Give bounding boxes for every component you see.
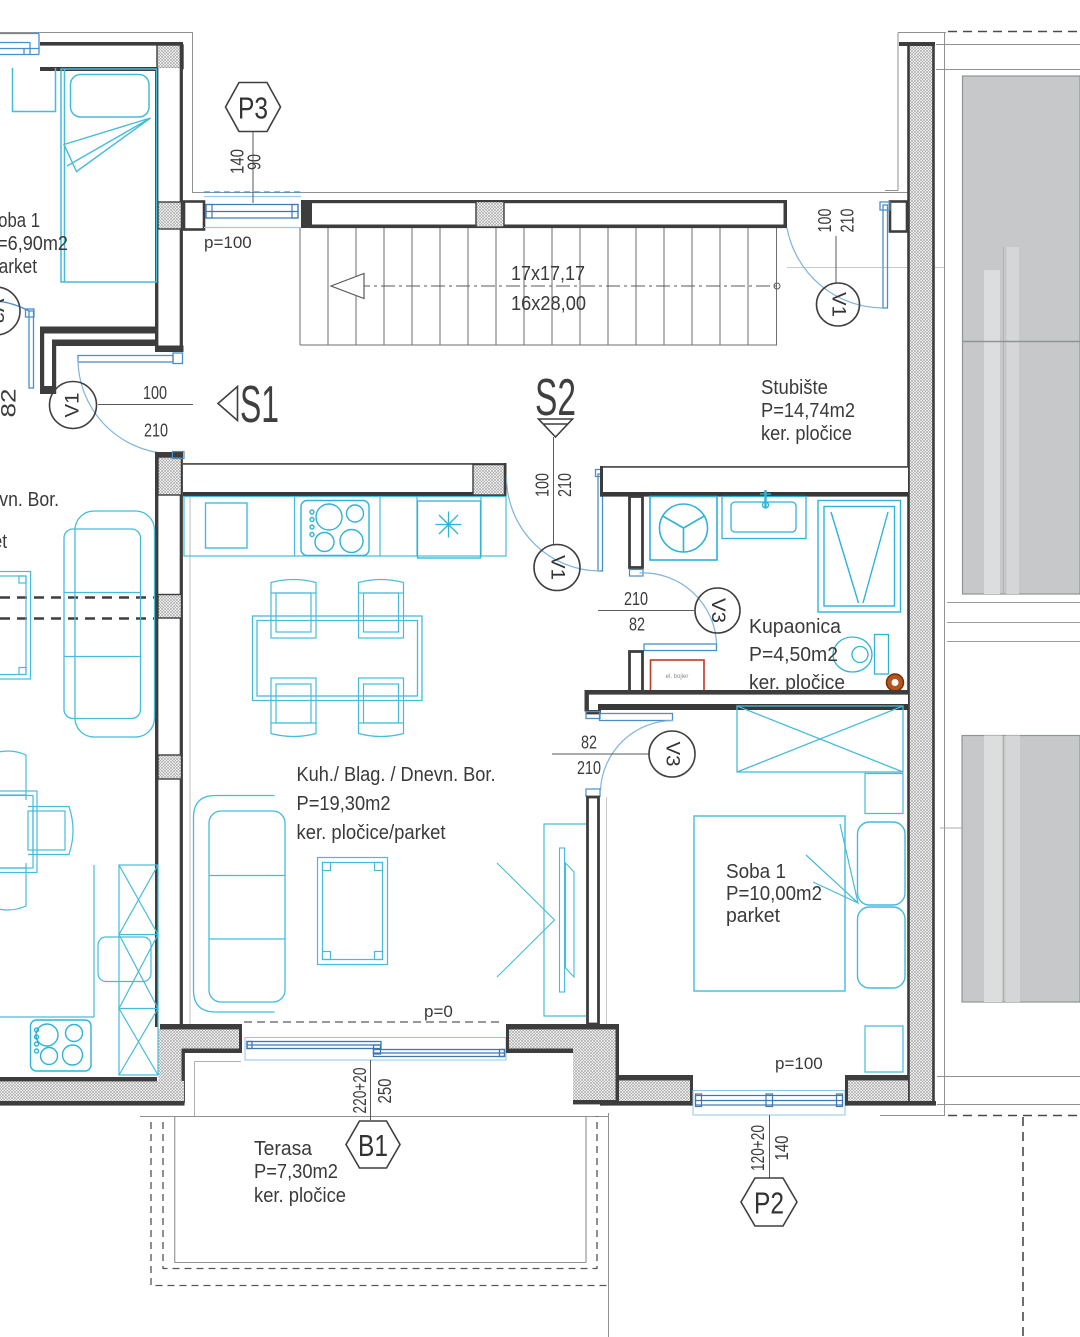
svg-text:V1: V1	[828, 292, 849, 317]
svg-text:p=100: p=100	[775, 1054, 823, 1073]
svg-text:140: 140	[771, 1136, 792, 1161]
svg-text:ker. pločice/parket: ker. pločice/parket	[297, 822, 446, 844]
svg-text:P=4,50m2: P=4,50m2	[749, 644, 838, 666]
svg-text:P3: P3	[238, 91, 268, 126]
svg-text:V3: V3	[0, 299, 7, 324]
svg-text:210: 210	[577, 757, 601, 778]
svg-text:220+20: 220+20	[349, 1068, 370, 1114]
svg-text:p=0: p=0	[424, 1002, 453, 1021]
svg-text:V1: V1	[63, 393, 84, 418]
svg-text:B1: B1	[358, 1128, 388, 1163]
svg-text:P=10,00m2: P=10,00m2	[726, 883, 822, 905]
svg-text:Terasa: Terasa	[254, 1138, 313, 1160]
svg-text:210: 210	[624, 588, 648, 609]
svg-text:82: 82	[629, 614, 645, 635]
svg-text:250: 250	[374, 1079, 395, 1104]
svg-text:Stubište: Stubište	[761, 377, 828, 399]
svg-text:P=14,74m2: P=14,74m2	[761, 400, 855, 422]
svg-text:210: 210	[837, 209, 858, 233]
svg-text:100: 100	[532, 473, 553, 497]
svg-text:Soba 1: Soba 1	[726, 861, 786, 883]
svg-text:V1: V1	[547, 555, 568, 580]
svg-text:el. bojler: el. bojler	[666, 674, 689, 680]
svg-text:16x28,00: 16x28,00	[511, 293, 586, 315]
svg-text:P=19,30m2: P=19,30m2	[297, 793, 391, 815]
svg-text:parket: parket	[0, 256, 37, 278]
svg-text:p=100: p=100	[204, 233, 252, 252]
svg-text:P2: P2	[754, 1186, 784, 1221]
svg-text:Dnevn. Bor.: Dnevn. Bor.	[0, 489, 59, 511]
svg-text:V3: V3	[662, 742, 683, 767]
svg-text:S1: S1	[240, 376, 279, 434]
svg-text:210: 210	[144, 420, 168, 441]
svg-text:P=6,90m2: P=6,90m2	[0, 233, 68, 255]
svg-text:90: 90	[244, 154, 265, 170]
svg-text:17x17,17: 17x17,17	[511, 263, 585, 285]
svg-text:Kuh./ Blag. / Dnevn. Bor.: Kuh./ Blag. / Dnevn. Bor.	[297, 764, 496, 786]
svg-text:Soba 1: Soba 1	[0, 210, 40, 232]
svg-text:ker. pločice: ker. pločice	[254, 1185, 346, 1207]
svg-text:parket: parket	[726, 905, 780, 927]
svg-text:P=7,30m2: P=7,30m2	[254, 1161, 338, 1183]
svg-text:V3: V3	[707, 598, 728, 623]
svg-text:parket: parket	[0, 531, 7, 553]
svg-text:Kupaonica: Kupaonica	[749, 616, 842, 638]
svg-text:82: 82	[581, 732, 597, 753]
svg-text:ker. pločice: ker. pločice	[761, 423, 852, 445]
svg-text:100: 100	[143, 382, 167, 403]
svg-text:100: 100	[814, 209, 835, 233]
svg-text:82: 82	[0, 389, 21, 418]
svg-text:120+20: 120+20	[747, 1125, 768, 1171]
svg-text:210: 210	[554, 473, 575, 497]
